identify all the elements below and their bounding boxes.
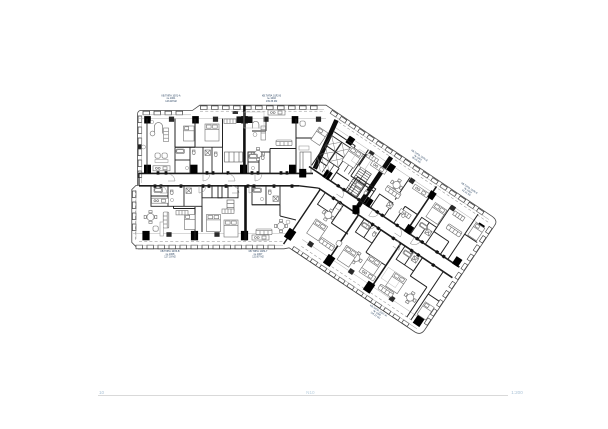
svg-text:143.48 М2: 143.48 М2: [165, 100, 177, 103]
svg-text:123.87 М2: 123.87 М2: [252, 256, 264, 259]
svg-text:127.33 М2: 127.33 М2: [164, 256, 176, 259]
svg-text:10: 10: [99, 390, 105, 395]
svg-text:139.36 М2: 139.36 М2: [266, 100, 278, 103]
svg-text:1:200: 1:200: [511, 390, 523, 395]
svg-text:N10: N10: [306, 390, 315, 395]
